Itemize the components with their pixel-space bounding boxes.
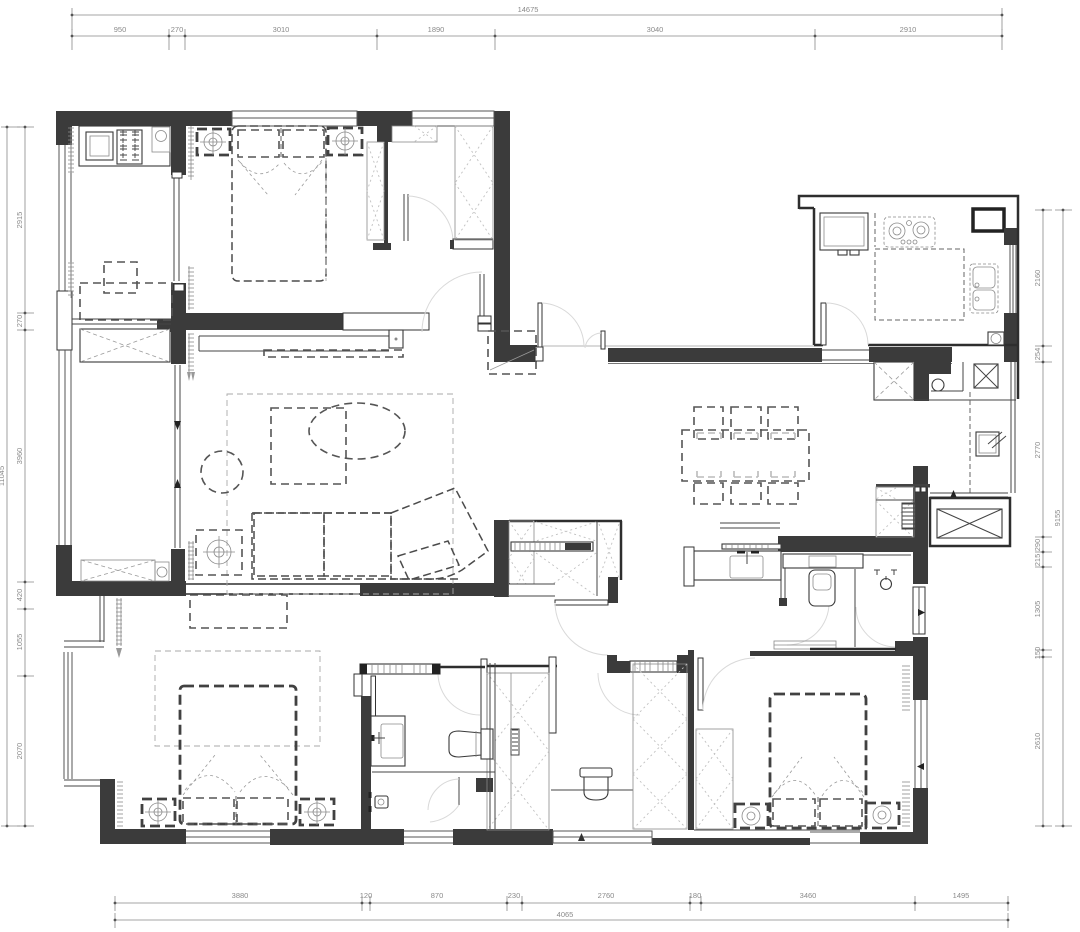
svg-text:150: 150 xyxy=(1033,647,1042,660)
svg-text:420: 420 xyxy=(15,589,24,602)
svg-text:215: 215 xyxy=(1033,554,1042,567)
svg-text:3460: 3460 xyxy=(800,891,817,900)
svg-text:1890: 1890 xyxy=(428,25,445,34)
svg-text:2160: 2160 xyxy=(1033,270,1042,287)
svg-text:1055: 1055 xyxy=(15,634,24,651)
svg-text:120: 120 xyxy=(360,891,373,900)
svg-text:9155: 9155 xyxy=(1053,510,1062,527)
svg-text:950: 950 xyxy=(114,25,127,34)
svg-text:3040: 3040 xyxy=(647,25,664,34)
svg-text:180: 180 xyxy=(689,891,702,900)
svg-text:11045: 11045 xyxy=(0,466,6,486)
svg-text:1305: 1305 xyxy=(1033,601,1042,618)
svg-text:3010: 3010 xyxy=(273,25,290,34)
svg-text:3880: 3880 xyxy=(232,891,249,900)
svg-text:3960: 3960 xyxy=(15,448,24,465)
svg-text:4065: 4065 xyxy=(557,910,574,919)
svg-text:870: 870 xyxy=(431,891,444,900)
svg-text:14675: 14675 xyxy=(518,5,539,14)
svg-text:2910: 2910 xyxy=(900,25,917,34)
svg-text:2760: 2760 xyxy=(598,891,615,900)
svg-text:2915: 2915 xyxy=(15,212,24,229)
svg-text:270: 270 xyxy=(171,25,184,34)
svg-text:2070: 2070 xyxy=(15,743,24,760)
svg-text:290: 290 xyxy=(1033,539,1042,552)
svg-text:2610: 2610 xyxy=(1033,733,1042,750)
svg-text:2770: 2770 xyxy=(1033,442,1042,459)
svg-text:1495: 1495 xyxy=(953,891,970,900)
svg-text:230: 230 xyxy=(508,891,521,900)
svg-text:270: 270 xyxy=(15,315,24,328)
svg-text:254: 254 xyxy=(1033,348,1042,361)
